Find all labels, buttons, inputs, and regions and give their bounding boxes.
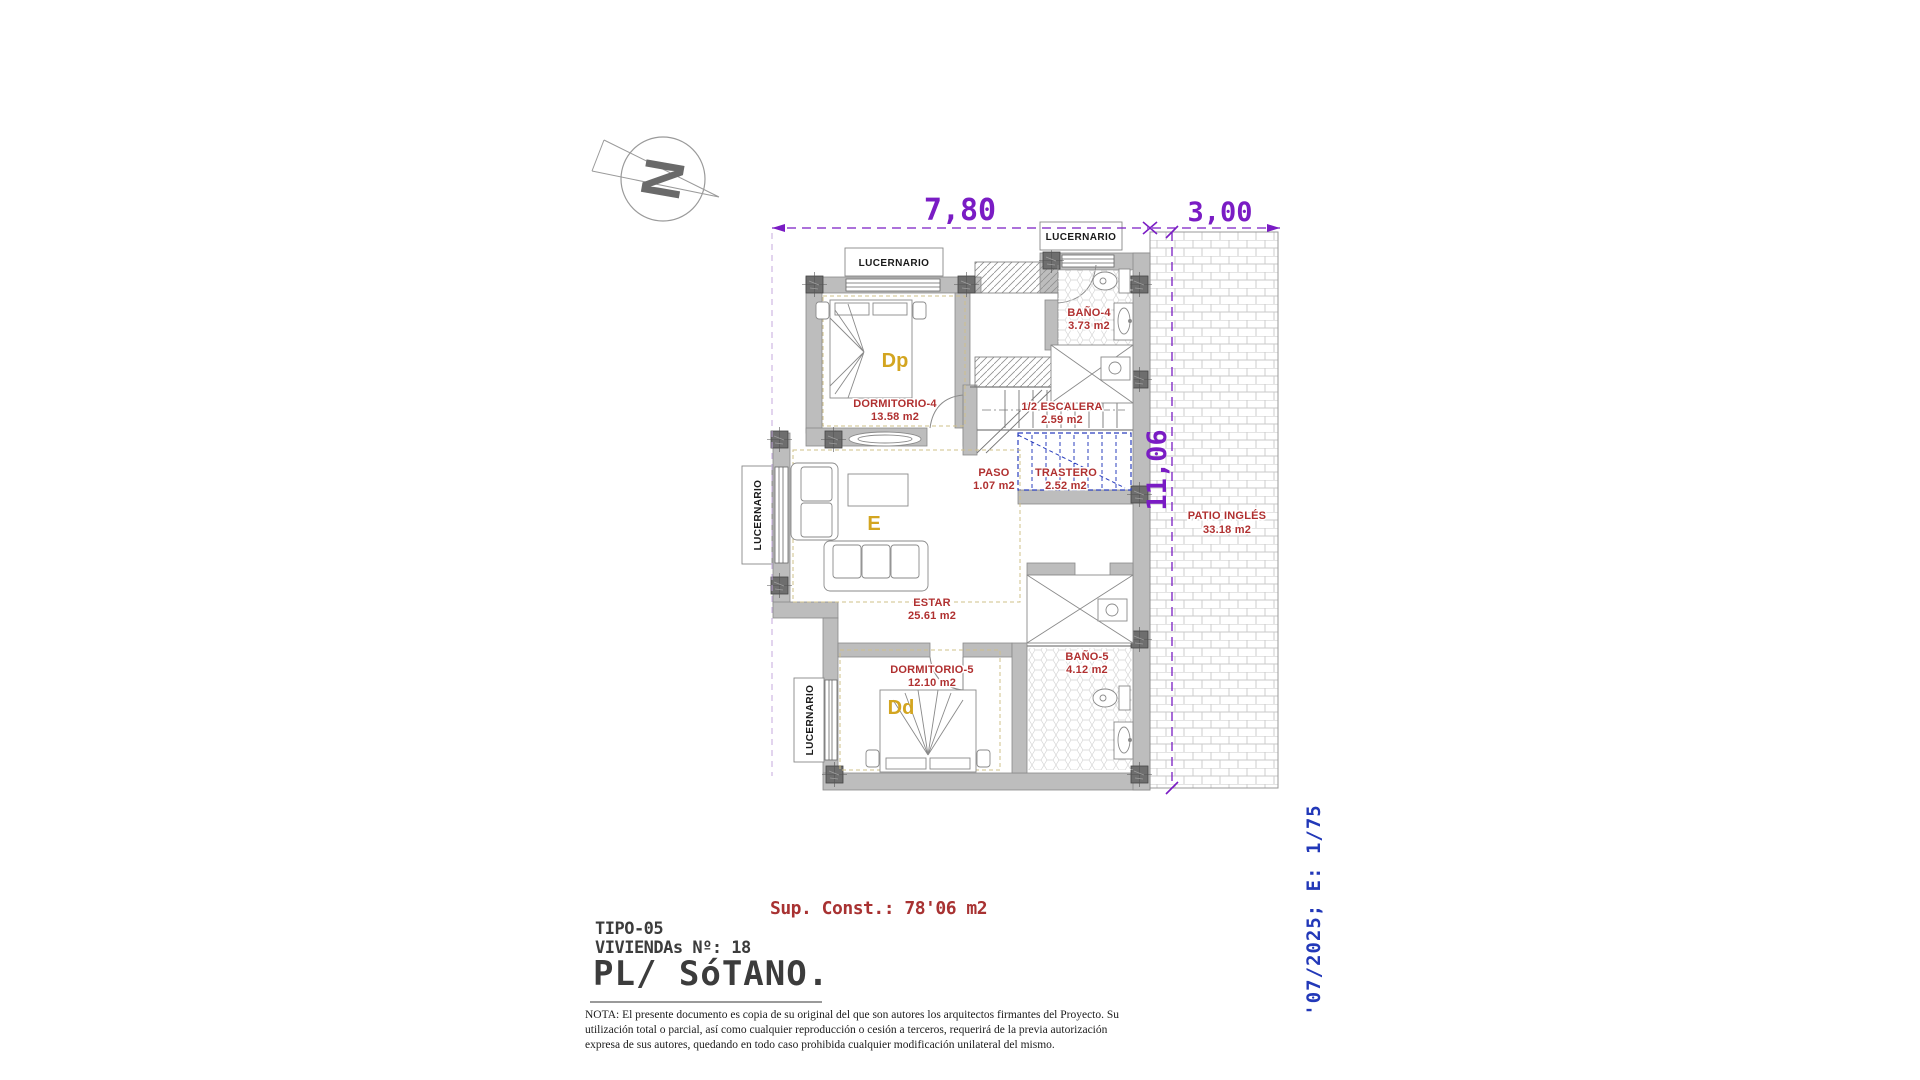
built-area-note: Sup. Const.: 78'06 m2 <box>770 898 987 919</box>
lucernario-label-dorm5: LUCERNARIO <box>805 685 816 756</box>
label-trastero-area: 2.52 m2 <box>1045 480 1087 492</box>
shower-bath4 <box>1051 345 1133 403</box>
label-dormitorio4-name: DORMITORIO-4 <box>853 398 937 410</box>
lucernario-label-estar: LUCERNARIO <box>753 480 764 551</box>
label-bano5-name: BAÑO-5 <box>1065 650 1108 663</box>
label-bano4-area: 3.73 m2 <box>1068 320 1110 332</box>
type-label: TIPO-05 <box>595 919 663 939</box>
dim-side-height: 11,06 <box>1142 429 1173 510</box>
north-arrow-compass: N <box>592 137 719 221</box>
label-patio-name: PATIO INGLÉS <box>1188 509 1266 522</box>
bathroom-4 <box>1051 269 1133 403</box>
sofa-set-estar <box>791 432 928 591</box>
revision-scale-text: '07/2025; E: 1/75 <box>1303 804 1325 1015</box>
bed-dormitorio-5 <box>866 690 990 772</box>
lucernario-label-top: LUCERNARIO <box>859 258 930 269</box>
dim-top-width: 7,80 <box>924 193 996 228</box>
bed-dormitorio-4 <box>816 300 926 398</box>
label-escalera-name: 1/2 ESCALERA <box>1021 401 1102 413</box>
label-paso-area: 1.07 m2 <box>973 480 1015 492</box>
dim-patio-width: 3,00 <box>1187 197 1252 228</box>
letter-dd-dormitorio5: Dd <box>888 697 915 719</box>
label-estar-area: 25.61 m2 <box>908 610 956 622</box>
label-bano5-area: 4.12 m2 <box>1066 664 1108 676</box>
floor-plan-sheet: N <box>0 0 1920 1080</box>
label-dormitorio4-area: 13.58 m2 <box>871 411 919 423</box>
label-bano4-name: BAÑO-4 <box>1067 306 1111 319</box>
label-escalera-area: 2.59 m2 <box>1041 414 1083 426</box>
letter-dp-dormitorio4: Dp <box>882 350 909 372</box>
label-estar-name: ESTAR <box>913 597 950 609</box>
shower-bath5 <box>1027 575 1133 643</box>
label-patio-area: 33.18 m2 <box>1203 524 1251 536</box>
plan-title: PL/ SóTANO. <box>593 954 829 994</box>
letter-e-estar: E <box>867 513 880 535</box>
copyright-note: NOTA: El presente documento es copia de … <box>585 1008 1125 1054</box>
label-paso-name: PASO <box>978 467 1009 479</box>
sink-bath4 <box>1114 303 1133 340</box>
label-dormitorio5-area: 12.10 m2 <box>908 677 956 689</box>
compass-north-letter: N <box>628 154 697 205</box>
title-underline <box>590 1001 822 1003</box>
lucernario-label-bath: LUCERNARIO <box>1046 232 1117 243</box>
label-dormitorio5-name: DORMITORIO-5 <box>890 664 973 676</box>
label-trastero-name: TRASTERO <box>1035 467 1097 479</box>
sink-bath5 <box>1114 722 1133 759</box>
